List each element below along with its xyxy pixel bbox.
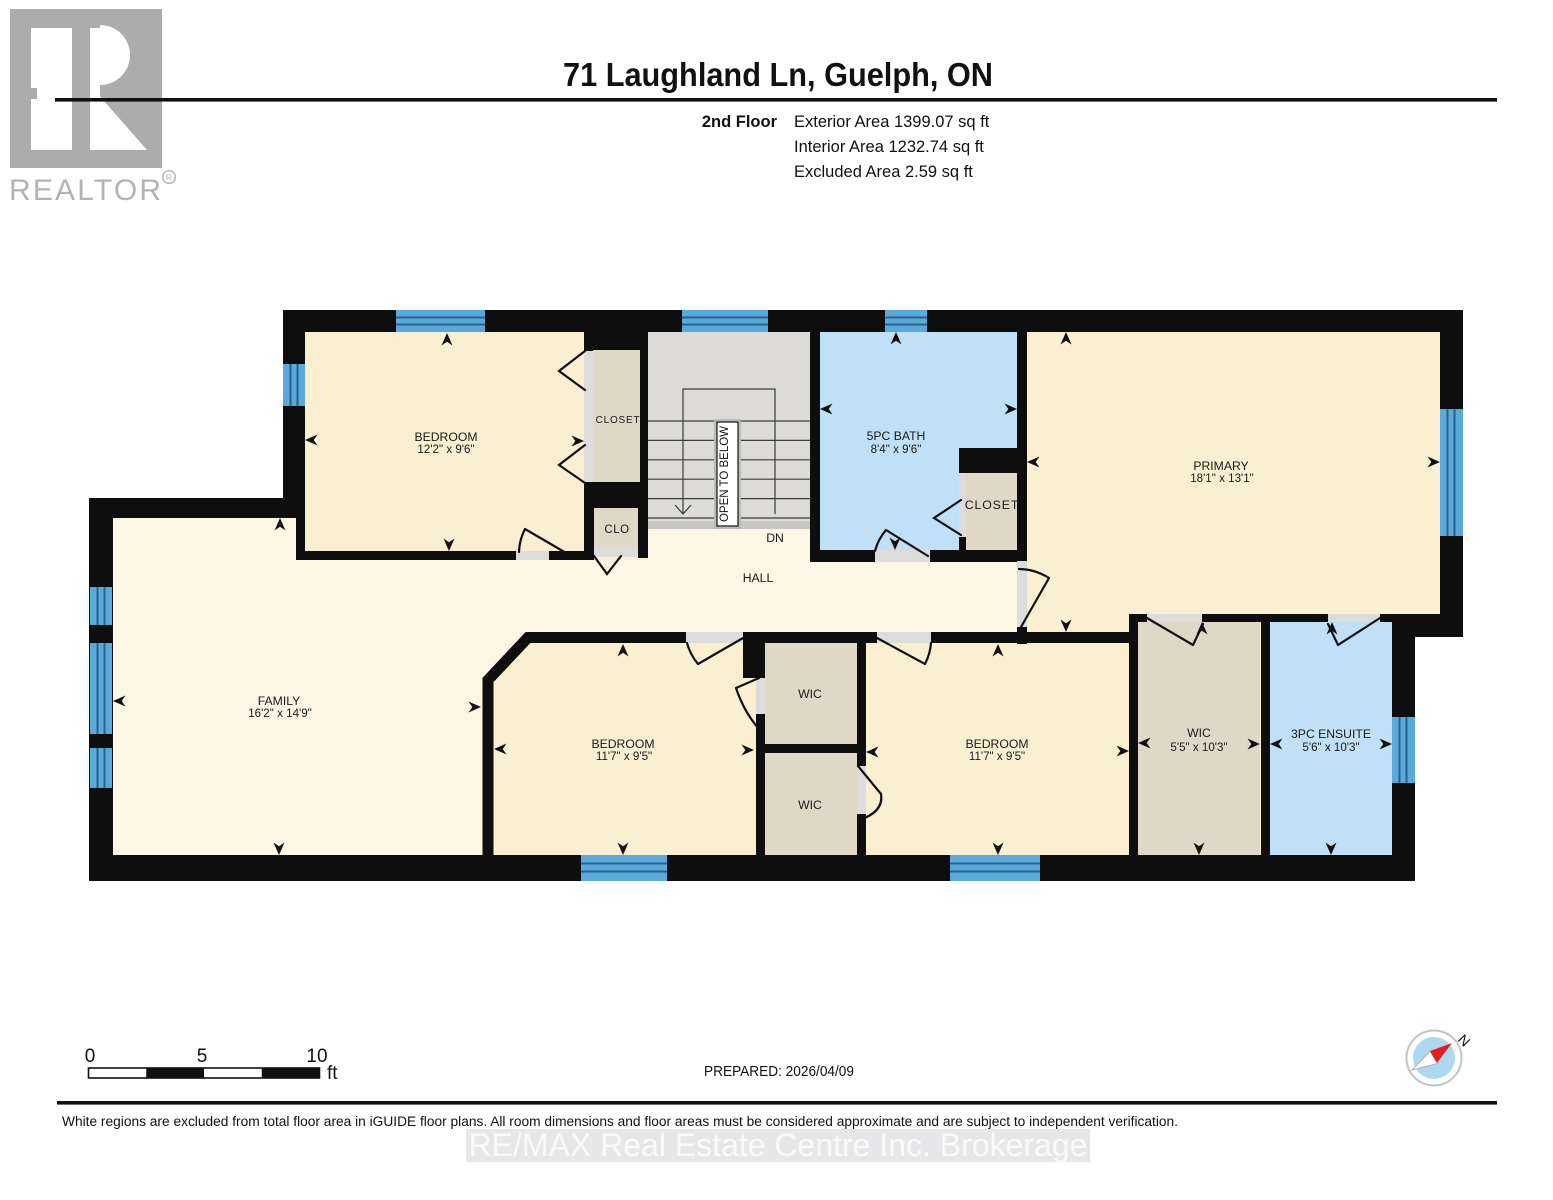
svg-text:11'7" x 9'5": 11'7" x 9'5" [969, 750, 1025, 763]
svg-text:CLOSET: CLOSET [596, 415, 641, 426]
svg-text:PREPARED: 2026/04/09: PREPARED: 2026/04/09 [704, 1063, 854, 1080]
svg-text:BEDROOM: BEDROOM [966, 737, 1029, 751]
svg-text:HALL: HALL [743, 571, 774, 585]
svg-text:WIC: WIC [798, 687, 822, 701]
svg-text:12'2" x 9'6": 12'2" x 9'6" [417, 443, 474, 456]
svg-text:FAMILY: FAMILY [258, 694, 300, 708]
svg-text:OPEN TO BELOW: OPEN TO BELOW [719, 426, 731, 522]
svg-text:11'7" x 9'5": 11'7" x 9'5" [596, 750, 652, 763]
svg-text:BEDROOM: BEDROOM [592, 737, 655, 751]
svg-text:16'2" x 14'9": 16'2" x 14'9" [248, 707, 312, 720]
svg-text:RE/MAX Real Estate Centre Inc.: RE/MAX Real Estate Centre Inc. Brokerage [469, 1127, 1088, 1163]
svg-text:5: 5 [197, 1046, 208, 1067]
svg-text:PRIMARY: PRIMARY [1193, 459, 1248, 473]
svg-text:Excluded Area 2.59 sq ft: Excluded Area 2.59 sq ft [794, 163, 973, 181]
svg-text:8'4" x 9'6": 8'4" x 9'6" [871, 443, 922, 456]
svg-text:5'5" x 10'3": 5'5" x 10'3" [1170, 741, 1227, 754]
svg-text:REALTOR: REALTOR [9, 174, 161, 207]
svg-text:DN: DN [766, 531, 784, 545]
svg-text:10: 10 [306, 1046, 327, 1067]
svg-text:ft: ft [327, 1063, 338, 1084]
svg-text:5PC BATH: 5PC BATH [867, 429, 926, 443]
svg-text:WIC: WIC [1187, 726, 1211, 740]
svg-text:0: 0 [85, 1046, 96, 1067]
svg-text:Exterior Area 1399.07 sq ft: Exterior Area 1399.07 sq ft [794, 113, 990, 131]
svg-text:WIC: WIC [798, 798, 822, 812]
svg-text:Interior Area 1232.74 sq ft: Interior Area 1232.74 sq ft [794, 138, 984, 156]
svg-text:3PC ENSUITE: 3PC ENSUITE [1291, 727, 1371, 741]
svg-text:71 Laughland Ln, Guelph, ON: 71 Laughland Ln, Guelph, ON [563, 56, 993, 93]
svg-text:2nd Floor: 2nd Floor [702, 113, 778, 131]
svg-text:18'1" x 13'1": 18'1" x 13'1" [1190, 472, 1254, 485]
svg-text:CLOSET: CLOSET [965, 498, 1020, 512]
svg-text:5'6" x 10'3": 5'6" x 10'3" [1302, 741, 1359, 754]
svg-text:BEDROOM: BEDROOM [415, 430, 478, 444]
svg-text:CLO: CLO [604, 524, 629, 536]
svg-text:R: R [166, 173, 172, 183]
